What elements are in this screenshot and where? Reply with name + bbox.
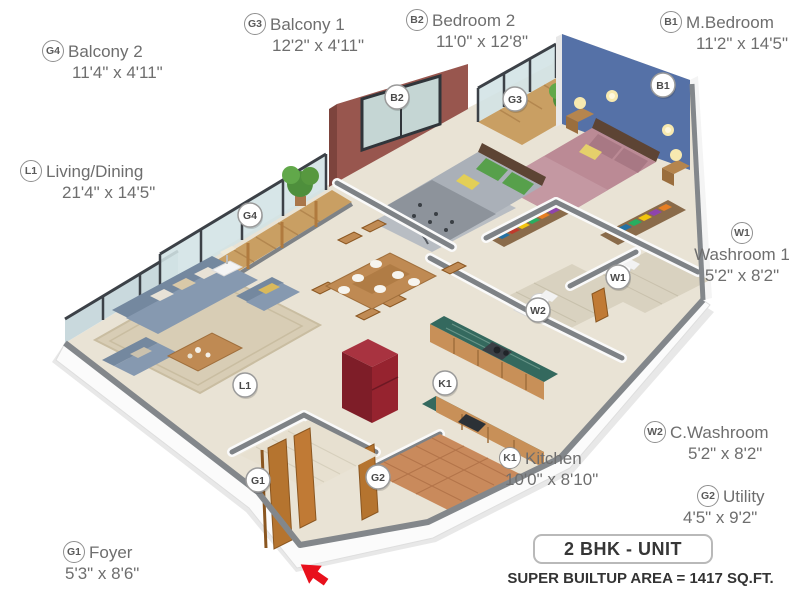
room-name: Kitchen: [525, 448, 582, 469]
super-builtup-area: SUPER BUILTUP AREA = 1417 SQ.FT.: [478, 570, 800, 587]
svg-text:W2: W2: [530, 305, 546, 317]
room-dims: 5'2" x 8'2": [672, 265, 800, 286]
room-name: Utility: [723, 486, 765, 507]
room-code-badge: B1: [660, 11, 682, 33]
svg-text:L1: L1: [239, 380, 251, 392]
room-code-badge: G4: [42, 40, 64, 62]
svg-text:G4: G4: [243, 210, 257, 222]
svg-text:K1: K1: [438, 378, 452, 390]
label-c-washroom: W2C.Washroom 5'2" x 8'2": [644, 421, 769, 464]
svg-text:G3: G3: [508, 94, 522, 106]
label-balcony-1: G3Balcony 1 12'2" x 4'11": [244, 13, 364, 56]
room-name: Balcony 1: [270, 14, 345, 35]
room-name: Bedroom 2: [432, 10, 515, 31]
svg-text:B1: B1: [656, 80, 670, 92]
room-code-badge: G2: [697, 485, 719, 507]
room-dims: 11'4" x 4'11": [42, 62, 163, 83]
unit-type-box: 2 BHK - UNIT: [533, 534, 713, 564]
floorplan-page: G4 G3 B2 B1 L1 W1 W2 G2 K1 G1 G4Balcony …: [0, 0, 800, 600]
label-utility: G2Utility 4'5" x 9'2": [697, 485, 765, 528]
room-code-badge: W2: [644, 421, 666, 443]
room-code-badge: W1: [731, 222, 753, 244]
svg-text:B2: B2: [390, 92, 404, 104]
room-code-badge: B2: [406, 9, 428, 31]
floorplan-3d-render: G4 G3 B2 B1 L1 W1 W2 G2 K1 G1: [0, 0, 800, 600]
room-name: Washroom 1: [672, 244, 800, 265]
room-dims: 11'2" x 14'5": [660, 33, 788, 54]
label-foyer: G1Foyer 5'3" x 8'6": [63, 541, 139, 584]
room-dims: 4'5" x 9'2": [683, 507, 765, 528]
room-dims: 21'4" x 14'5": [20, 182, 155, 203]
room-dims: 10'0" x 8'10": [499, 469, 598, 490]
room-name: Living/Dining: [46, 161, 143, 182]
room-name: C.Washroom: [670, 422, 769, 443]
room-dims: 5'3" x 8'6": [63, 563, 139, 584]
room-code-badge: L1: [20, 160, 42, 182]
room-dims: 11'0" x 12'8": [406, 31, 528, 52]
room-code-badge: G1: [63, 541, 85, 563]
label-master-bedroom: B1M.Bedroom 11'2" x 14'5": [660, 11, 788, 54]
room-name: M.Bedroom: [686, 12, 774, 33]
label-living-dining: L1Living/Dining 21'4" x 14'5": [20, 160, 155, 203]
label-washroom-1: W1 Washroom 1 5'2" x 8'2": [672, 222, 800, 286]
svg-text:G2: G2: [371, 472, 385, 484]
label-balcony-2: G4Balcony 2 11'4" x 4'11": [42, 40, 163, 83]
svg-text:G1: G1: [251, 475, 265, 487]
room-code-badge: G3: [244, 13, 266, 35]
room-name: Balcony 2: [68, 41, 143, 62]
room-code-badge: K1: [499, 447, 521, 469]
label-kitchen: K1Kitchen 10'0" x 8'10": [499, 447, 598, 490]
room-name: Foyer: [89, 542, 132, 563]
svg-text:W1: W1: [610, 272, 626, 284]
room-dims: 12'2" x 4'11": [244, 35, 364, 56]
label-bedroom-2: B2Bedroom 2 11'0" x 12'8": [406, 9, 528, 52]
kitchen-fridge: [342, 339, 398, 423]
room-dims: 5'2" x 8'2": [644, 443, 769, 464]
